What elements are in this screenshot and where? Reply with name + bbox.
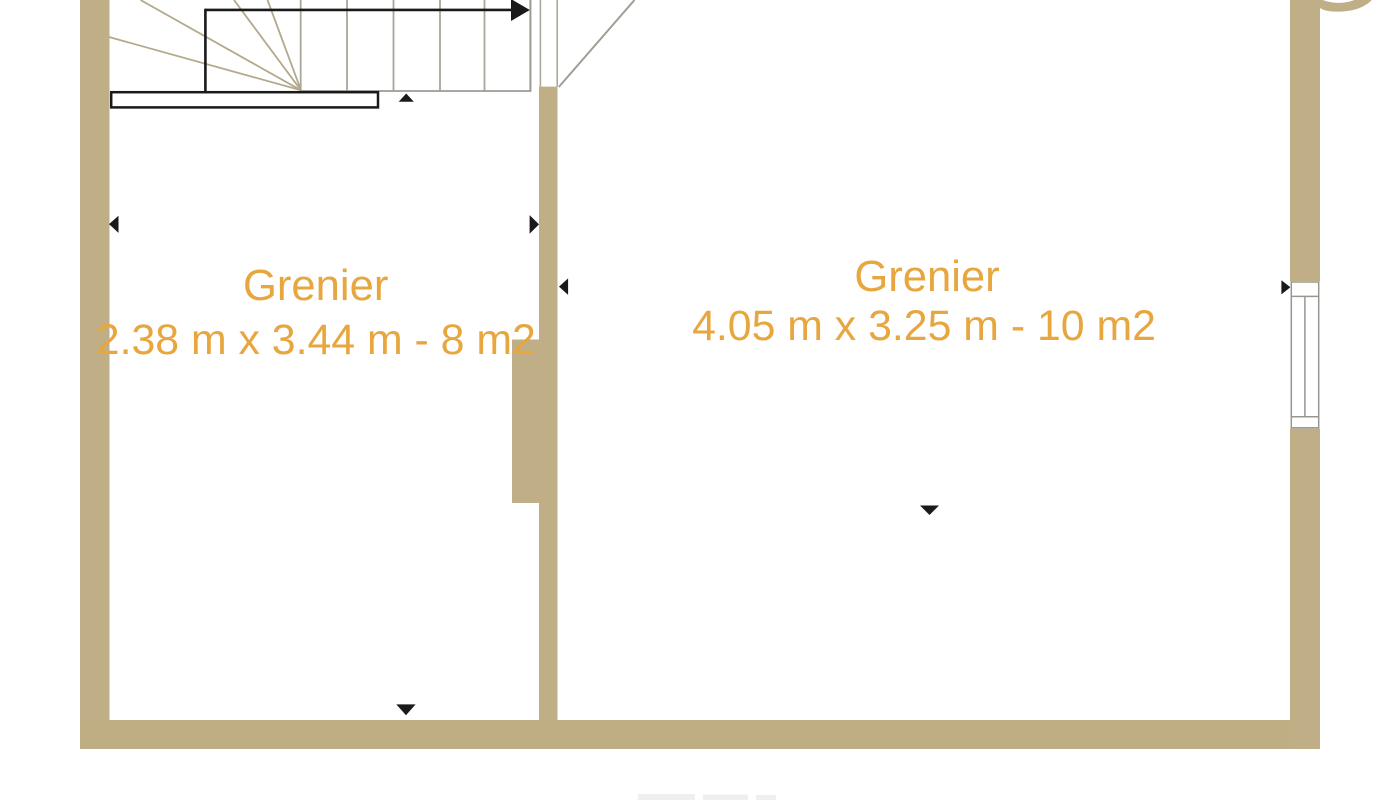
svg-text:2.38 m x 3.44 m - 8 m2: 2.38 m x 3.44 m - 8 m2 [96,316,536,364]
svg-text:4.05 m x 3.25 m - 10 m2: 4.05 m x 3.25 m - 10 m2 [692,302,1156,350]
svg-text:Grenier: Grenier [243,262,388,310]
svg-text:Grenier: Grenier [854,253,999,301]
